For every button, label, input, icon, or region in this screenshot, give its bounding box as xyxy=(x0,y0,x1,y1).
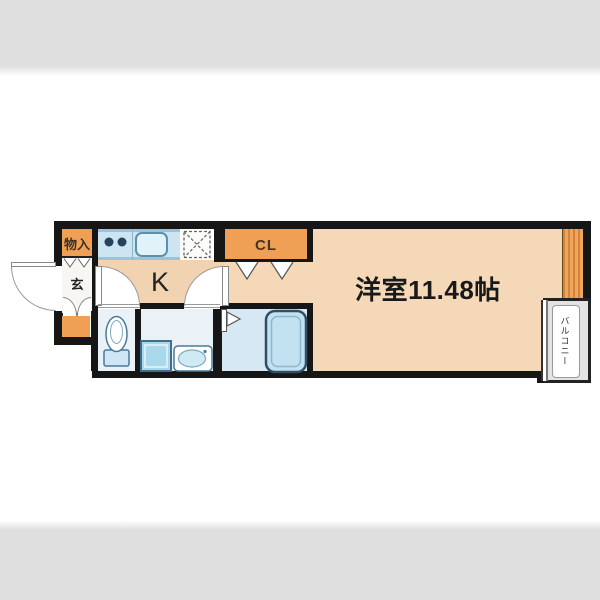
closet-label: CL xyxy=(225,231,307,259)
counter-edge-top xyxy=(98,229,180,232)
wall-k-bottom-a xyxy=(140,303,184,309)
hall-door-leaf xyxy=(222,266,229,306)
balcony-window-inner xyxy=(546,300,548,381)
wall-fridge-closet xyxy=(214,229,221,262)
storage-label: 物入 xyxy=(61,232,93,254)
closet-passage-floor xyxy=(224,262,313,303)
entrance-door-icon xyxy=(11,266,56,311)
toilet-room-floor xyxy=(98,309,135,371)
top-band-fade xyxy=(0,66,600,76)
entrance-label: 玄 xyxy=(64,274,90,292)
counter-divider xyxy=(132,229,133,260)
shoe-storage-box xyxy=(62,316,90,337)
wall-main-left-lower xyxy=(307,303,313,378)
counter-edge-bottom xyxy=(98,257,180,260)
wall-toilet-left xyxy=(91,311,98,371)
refrigerator-space-icon xyxy=(180,229,214,260)
washroom-floor xyxy=(141,309,213,371)
floorplan-image: 物入 玄 K CL 洋室11.48帖 バルコニー xyxy=(0,0,600,600)
storage-bottom-line xyxy=(62,256,92,258)
wall-right xyxy=(583,221,591,300)
balcony-label: バルコニー xyxy=(553,308,577,374)
bathroom-floor xyxy=(222,309,307,371)
wall-k-bottom-b xyxy=(220,303,313,309)
toilet-door-leaf xyxy=(95,266,102,306)
bottom-band-fade xyxy=(0,520,600,530)
entrance-door-leaf xyxy=(11,262,56,267)
wall-top xyxy=(54,221,591,229)
kitchen-counter xyxy=(98,229,180,260)
bottom-gray-band xyxy=(0,530,600,600)
hatched-shaft xyxy=(562,229,584,298)
wall-closet-right xyxy=(307,229,313,262)
main-room-label: 洋室11.48帖 xyxy=(313,272,543,304)
wall-bottom xyxy=(92,371,545,378)
bathroom-folding-door-icon xyxy=(221,309,227,332)
wall-toilet-washroom xyxy=(135,309,141,371)
top-gray-band xyxy=(0,0,600,66)
kitchen-label: K xyxy=(140,263,180,301)
